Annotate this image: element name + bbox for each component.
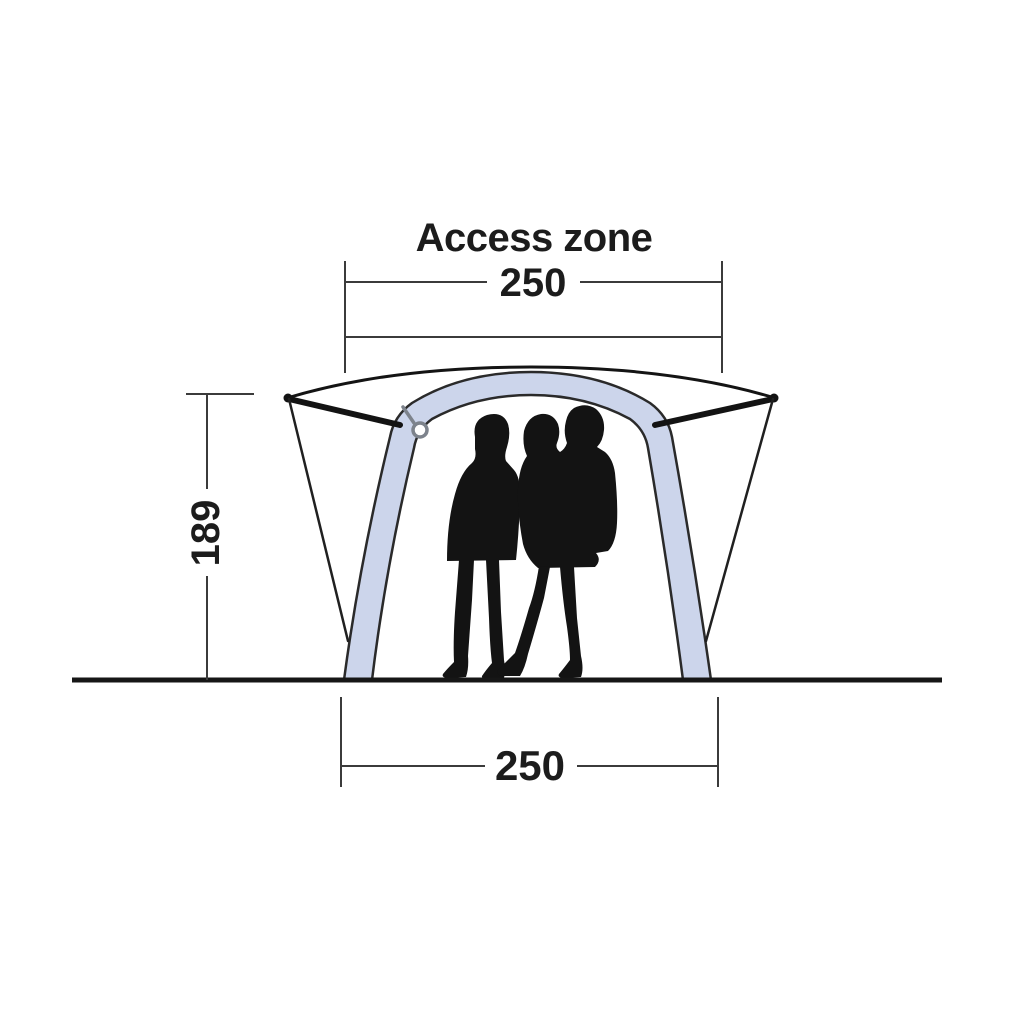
corner-node-left [284, 394, 293, 403]
ridge-seam-left [289, 399, 400, 425]
access-zone-label: Access zone [416, 216, 653, 260]
diagram-svg: Access zone 250 [0, 0, 1024, 1024]
family-silhouette [443, 405, 618, 679]
base-width-value: 250 [495, 742, 565, 789]
ridge-seam-right [655, 399, 773, 425]
adult-child-bodies [518, 405, 617, 568]
tent-dimension-diagram: Access zone 250 [0, 0, 1024, 1024]
adult-right-leg-front [497, 566, 550, 676]
guy-line-left [289, 399, 348, 641]
access-zone-dimension: Access zone 250 [345, 216, 722, 373]
adult-left-leg-front [443, 560, 474, 678]
height-dimension: 189 [184, 394, 254, 680]
access-zone-width-value: 250 [500, 261, 567, 305]
tie-ring-loop [413, 423, 427, 437]
adult-left-body [447, 414, 520, 561]
corner-node-right [770, 394, 779, 403]
base-width-dimension: 250 [341, 697, 718, 789]
adult-right-leg-back [559, 567, 583, 678]
adult-silhouette-left [443, 414, 520, 679]
guy-line-right [706, 399, 773, 641]
height-value: 189 [184, 500, 228, 567]
adult-left-leg-back [482, 560, 505, 679]
